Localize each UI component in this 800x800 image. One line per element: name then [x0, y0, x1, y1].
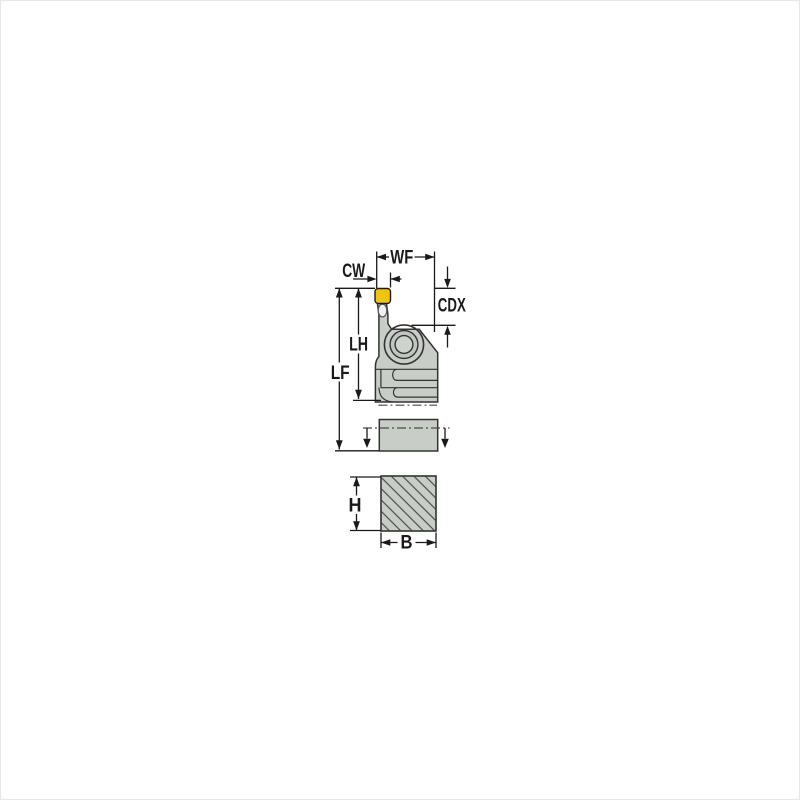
cutting-insert — [375, 289, 391, 304]
lh-arrow-up-icon — [355, 288, 362, 297]
tool-holder-dimension-drawing: WF CW CDX LF LH H B — [1, 1, 799, 799]
shank-hatching — [381, 476, 436, 531]
lf-label: LF — [331, 363, 350, 384]
h-arrow-up-icon — [353, 477, 360, 486]
dimension-lf-lh: LF LH — [331, 288, 381, 451]
cw-arrow-right-icon — [367, 276, 376, 283]
drawing-canvas: WF CW CDX LF LH H B — [0, 0, 800, 800]
cdx-arrow-up-icon — [444, 326, 451, 335]
dimension-h: H — [349, 477, 381, 531]
clamp-screw-socket — [395, 336, 413, 354]
blade-slot — [378, 304, 387, 317]
lh-arrow-down-icon — [355, 390, 362, 399]
b-arrow-right-icon — [427, 539, 436, 546]
h-arrow-down-icon — [353, 521, 360, 530]
main-side-view — [375, 289, 438, 406]
lh-label: LH — [349, 335, 368, 356]
cdx-label: CDX — [438, 296, 466, 317]
lf-arrow-up-icon — [336, 288, 343, 297]
rail-body — [379, 420, 437, 452]
h-label: H — [349, 496, 362, 517]
wf-arrow-left-icon — [377, 254, 386, 261]
cdx-arrow-down-icon — [444, 279, 451, 288]
wf-arrow-right-icon — [425, 254, 434, 261]
section-arrow-left-icon — [363, 439, 371, 448]
cw-label: CW — [342, 261, 365, 282]
shank-cross-section — [381, 476, 436, 531]
b-label: B — [401, 533, 413, 554]
lf-arrow-down-icon — [336, 440, 343, 449]
cw-arrow-left-icon — [391, 276, 400, 283]
wf-label: WF — [390, 248, 413, 269]
b-arrow-left-icon — [381, 539, 390, 546]
section-arrow-right-icon — [441, 439, 449, 448]
dimension-b: B — [381, 533, 436, 554]
clamp-rail-view — [363, 420, 450, 452]
